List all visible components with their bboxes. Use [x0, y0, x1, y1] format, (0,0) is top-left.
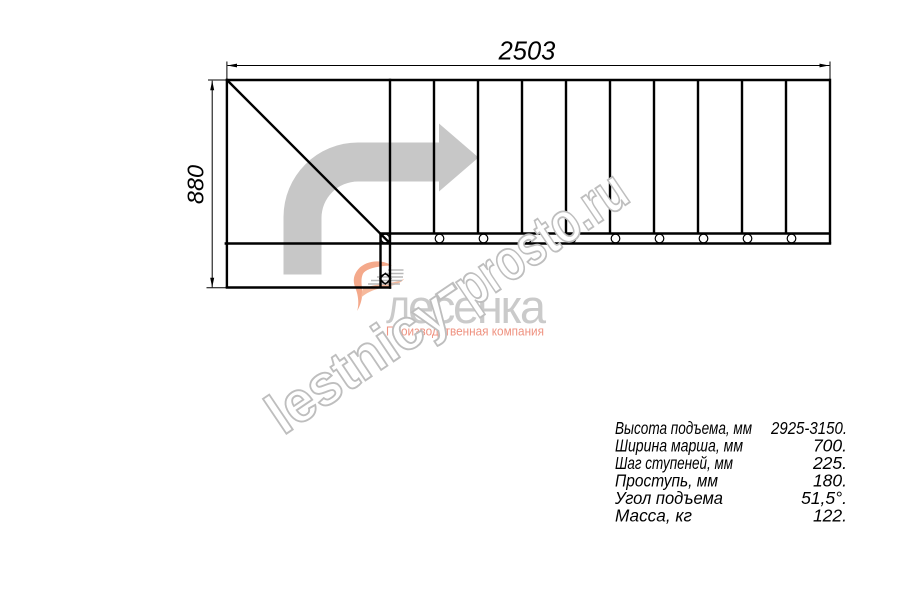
- svg-text:2503: 2503: [498, 38, 556, 66]
- svg-text:122.: 122.: [813, 506, 847, 526]
- svg-text:880: 880: [183, 165, 209, 204]
- svg-text:Масса, кг: Масса, кг: [615, 506, 692, 526]
- svg-text:lestnicy: lestnicy: [254, 278, 461, 447]
